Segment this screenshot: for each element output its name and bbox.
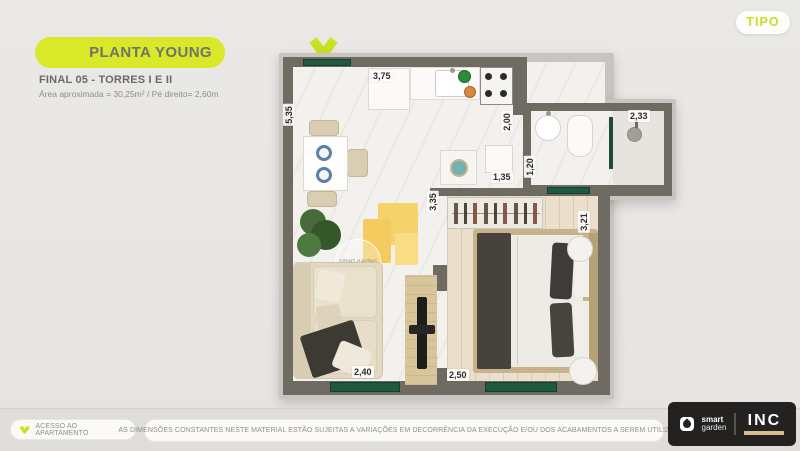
wardrobe-clothes — [454, 203, 538, 224]
tv-mount — [409, 325, 435, 334]
dimension-label: 2,33 — [628, 110, 650, 122]
dimension-label: 3,75 — [371, 70, 393, 82]
wall-hall — [430, 188, 543, 196]
dimension-label: 2,50 — [447, 369, 469, 381]
wardrobe — [447, 197, 543, 229]
bed-blanket — [477, 233, 511, 369]
inc-logo: INC — [744, 413, 784, 435]
burner — [500, 73, 507, 80]
inc-logo-text: INC — [748, 413, 782, 429]
bedside-pouf — [569, 357, 597, 385]
dining-chair — [347, 149, 368, 177]
plate — [316, 145, 332, 161]
area-info: Área aproximada = 30,25m² / Pé direito= … — [39, 89, 219, 99]
dining-table — [303, 136, 348, 191]
dimension-label: 1,20 — [524, 156, 536, 178]
pendant-light-glow — [395, 233, 418, 265]
bathroom-sink — [535, 115, 561, 141]
access-legend: ACESSO AO APARTAMENTO — [10, 419, 136, 440]
decor-bowl — [450, 159, 468, 177]
window-bathroom — [547, 187, 590, 194]
dining-chair — [309, 120, 339, 136]
dimension-label: 5,35 — [283, 104, 295, 126]
tipo-badge[interactable]: TIPO — [736, 11, 790, 34]
bed-sheet-fold — [517, 237, 518, 365]
shower-area — [613, 111, 664, 185]
window-bedroom — [485, 382, 557, 392]
smart-garden-logo-line2: garden — [702, 424, 727, 432]
dining-chair — [307, 191, 337, 207]
burner — [485, 73, 492, 80]
wall-bathroom-top — [523, 103, 672, 111]
stove-cooktop — [480, 67, 513, 105]
dimension-label: 2,40 — [352, 366, 374, 378]
toilet — [567, 115, 593, 157]
hall-cabinet — [485, 145, 513, 173]
plate — [316, 167, 332, 183]
disclaimer-text: AS DIMENSÕES CONSTANTES NESTE MATERIAL E… — [118, 427, 689, 434]
side-table — [440, 150, 477, 185]
wall-bathroom-right — [664, 103, 672, 196]
smart-garden-logo: smart garden — [702, 416, 727, 432]
shower-glass-partition — [609, 117, 613, 169]
logo-divider — [734, 413, 736, 435]
floor-plan: smart garden — [283, 57, 673, 395]
plan-subtitle: FINAL 05 - TORRES I E II — [39, 74, 172, 86]
dimension-label: 1,35 — [491, 171, 513, 183]
logos-container: smart garden INC — [668, 402, 796, 446]
shower-drain — [627, 127, 642, 142]
disclaimer-pill: AS DIMENSÕES CONSTANTES NESTE MATERIAL E… — [144, 419, 664, 442]
bed-pillow-dark — [550, 302, 575, 357]
fruit-bowl — [464, 86, 476, 98]
kitchen-faucet — [450, 68, 455, 73]
window-living — [330, 382, 400, 392]
wall-bedroom-right — [598, 185, 610, 385]
entry-door-strip — [303, 59, 351, 66]
plan-title-badge: PLANTA YOUNG — [35, 37, 225, 68]
page: PLANTA YOUNG FINAL 05 - TORRES I E II Ár… — [0, 0, 800, 450]
burner — [485, 90, 492, 97]
access-label: ACESSO AO APARTAMENTO — [35, 423, 127, 437]
plant-pot — [458, 70, 471, 83]
inc-logo-underline — [744, 431, 784, 435]
dimension-label: 2,00 — [501, 111, 513, 133]
bedside-pouf — [567, 236, 593, 262]
smart-garden-leaf-icon — [680, 417, 694, 431]
burner — [500, 90, 507, 97]
wall-bathroom-left — [523, 111, 531, 196]
bathroom-faucet — [546, 111, 551, 116]
floor-plant — [297, 233, 321, 257]
dimension-label: 3,21 — [578, 211, 590, 233]
access-chevron-down-icon — [19, 425, 30, 435]
dimension-label: 3,35 — [427, 191, 439, 213]
